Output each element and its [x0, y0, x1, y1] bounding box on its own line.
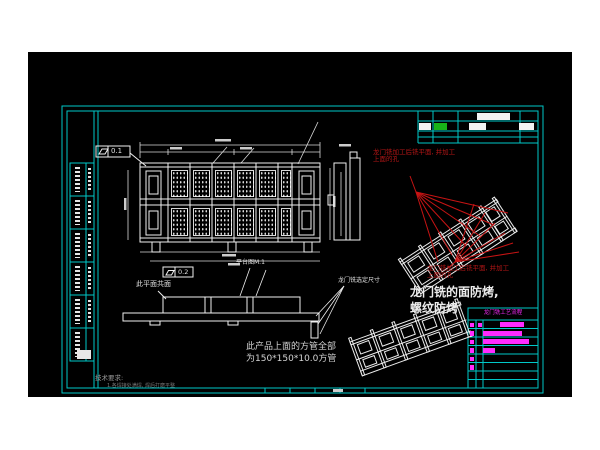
red-note-bottom-line2: 上面的孔 [427, 272, 509, 279]
process-row-marker [470, 348, 474, 353]
elevation-view [123, 268, 344, 338]
hatch-panel [215, 170, 233, 197]
flatness1-value: 0.1 [111, 148, 122, 156]
antibake-line1: 龙门铣的面防烤, [410, 286, 499, 299]
hatch-panel [259, 208, 277, 236]
hatch-panel [171, 208, 189, 236]
highlight-block [333, 389, 343, 392]
red-note-bottom: 龙门铣加工后铣平面, 并加工 上面的孔 [427, 265, 509, 279]
tech-req-item: 1.各焊接处满焊, 焊后打磨平整 [107, 384, 175, 390]
process-row-marker [470, 365, 474, 370]
coplanar-label: 此平面共面 [136, 281, 171, 289]
hatch-panel [171, 170, 189, 197]
bom-text-column [88, 267, 91, 289]
process-row-bar [483, 348, 495, 353]
bom-text-column [75, 167, 80, 192]
process-table-title: 龙门铣工艺流程 [468, 310, 538, 316]
process-row-marker [470, 357, 474, 362]
process-row-marker [478, 323, 482, 328]
screenshot-root: 龙门铣加工后铣平面, 并加工 上面的孔 龙门铣加工后铣平面, 并加工 上面的孔 … [0, 0, 600, 450]
hatch-panel [281, 170, 291, 197]
process-row-marker [470, 323, 474, 328]
flatness2-value: 0.2 [178, 269, 188, 276]
highlight-block [469, 123, 486, 130]
process-row-bar [483, 331, 522, 336]
highlight-block [477, 113, 510, 120]
bom-text-column [75, 200, 80, 225]
hatch-panel [259, 170, 277, 197]
highlight-block [419, 123, 431, 130]
process-row-marker [470, 340, 474, 345]
platform-ref-label: 平台图M.1 [236, 260, 265, 267]
process-row-bar [483, 339, 529, 344]
highlight-block [434, 123, 447, 130]
process-row-marker [470, 331, 474, 336]
bom-text-column [75, 233, 80, 258]
hatch-panel [237, 170, 255, 197]
hatch-panel [193, 208, 211, 236]
red-note-top: 龙门铣加工后铣平面, 并加工 上面的孔 [373, 149, 455, 163]
bom-text-column [75, 332, 80, 357]
hatch-panel [237, 208, 255, 236]
hatch-panel [193, 170, 211, 197]
bom-text-column [88, 201, 91, 223]
tube-note-line2: 为150*150*10.0方管 [246, 355, 336, 365]
bom-text-column [75, 266, 80, 291]
red-note-top-line2: 上面的孔 [373, 156, 455, 163]
highlight-block [519, 123, 534, 130]
hatch-panel [215, 208, 233, 236]
tube-note: 此产品上面的方管全部 为150*150*10.0方管 [246, 343, 336, 365]
tube-note-line1: 此产品上面的方管全部 [246, 343, 336, 353]
cad-line-art [0, 0, 600, 450]
bom-text-column [88, 300, 91, 322]
bom-text-column [88, 234, 91, 256]
tech-req-title: 技术要求: [95, 375, 123, 382]
hatch-panel [281, 208, 291, 236]
gantry-dim-label: 龙门铣选定尺寸 [338, 278, 380, 285]
process-row-bar [500, 322, 524, 327]
bom-text-column [75, 299, 80, 324]
side-section-view [328, 152, 360, 240]
bom-text-column [88, 168, 91, 190]
